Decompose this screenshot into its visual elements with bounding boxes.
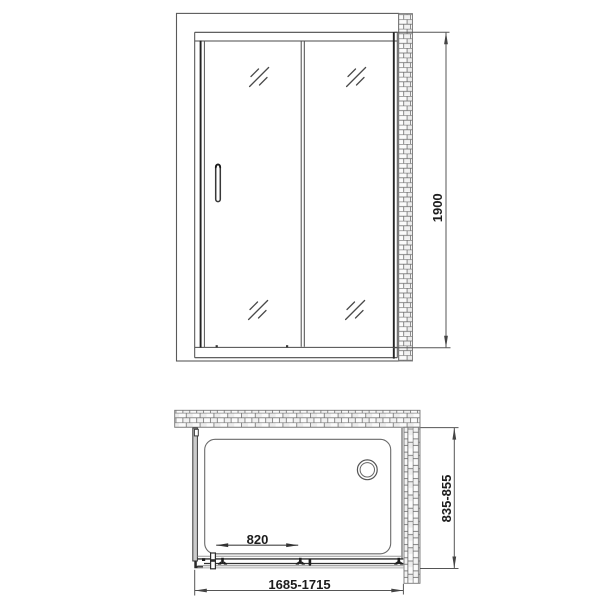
svg-text:1685-1715: 1685-1715: [268, 577, 330, 592]
svg-text:835-855: 835-855: [439, 475, 454, 523]
svg-text:820: 820: [247, 532, 269, 547]
svg-text:1900: 1900: [430, 193, 445, 222]
